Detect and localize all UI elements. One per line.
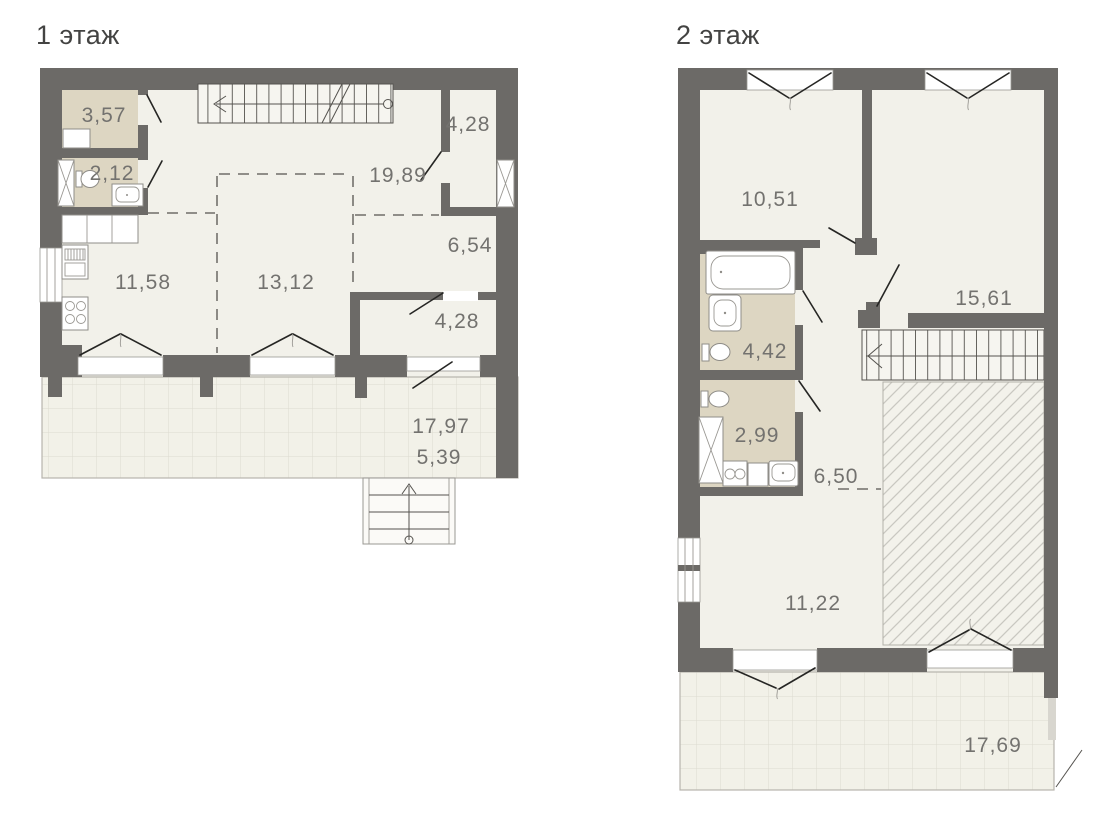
bathtub-icon: [706, 251, 795, 294]
floor1-staircase-icon: [198, 84, 393, 123]
floor1-plan: 1 этаж: [36, 20, 518, 544]
room-label-2-99: 2,99: [735, 424, 780, 447]
room-label-19-89: 19,89: [369, 164, 427, 187]
wc2-toilet-icon: [701, 391, 729, 407]
washer-icon: [63, 129, 90, 148]
room-label-11-22: 11,22: [785, 592, 841, 615]
terrace2-leader-line: [1056, 750, 1082, 787]
terrace2-label: 17,69: [964, 734, 1022, 757]
room-label-6-50: 6,50: [814, 465, 859, 488]
floorplan-canvas: 1 этаж: [0, 0, 1100, 823]
wc1-sink-icon: [112, 184, 143, 206]
floor2-right-window-icon: [1048, 698, 1056, 740]
wc2-cabinet-icon: [748, 463, 768, 486]
room-label-4-28-top: 4,28: [446, 113, 491, 136]
room-label-4-42: 4,42: [743, 340, 788, 363]
wc2-shower-icon: [699, 417, 723, 483]
bath-toilet-icon: [702, 344, 730, 362]
wc2-washer-icon: [723, 461, 747, 486]
terrace1-label-2: 5,39: [417, 446, 462, 469]
room-label-11-58: 11,58: [115, 271, 171, 294]
floorplan-page: 1 этаж: [0, 0, 1100, 823]
floor2-title: 2 этаж: [676, 20, 760, 50]
floor1-left-window-icon: [40, 248, 62, 302]
bath-sink-icon: [709, 295, 741, 331]
room-label-3-57: 3,57: [82, 104, 127, 127]
room-label-15-61: 15,61: [955, 287, 1013, 310]
terrace1-label-1: 17,97: [412, 415, 470, 438]
exterior-staircase-icon: [363, 478, 455, 544]
shaft-icon: [497, 160, 514, 207]
room-label-2-12: 2,12: [90, 162, 135, 185]
wc1-shower-icon: [58, 160, 74, 206]
room-label-13-12: 13,12: [257, 271, 315, 294]
floor2-left-window-icon: [678, 538, 700, 602]
stove-icon: [62, 297, 88, 330]
room-label-4-28-low: 4,28: [435, 310, 480, 333]
room-label-6-54: 6,54: [448, 234, 493, 257]
floor2-plan: 2 этаж: [676, 20, 1082, 790]
void-hatch-area: [883, 382, 1044, 645]
room-label-10-51: 10,51: [741, 188, 799, 211]
kitchen-counter-icon: [62, 215, 138, 243]
floor2-terrace: [680, 672, 1054, 790]
floor1-title: 1 этаж: [36, 20, 120, 50]
floor2-staircase-icon: [862, 330, 1044, 380]
wc2-sink-icon: [769, 461, 798, 486]
fridge-icon: [62, 245, 88, 279]
